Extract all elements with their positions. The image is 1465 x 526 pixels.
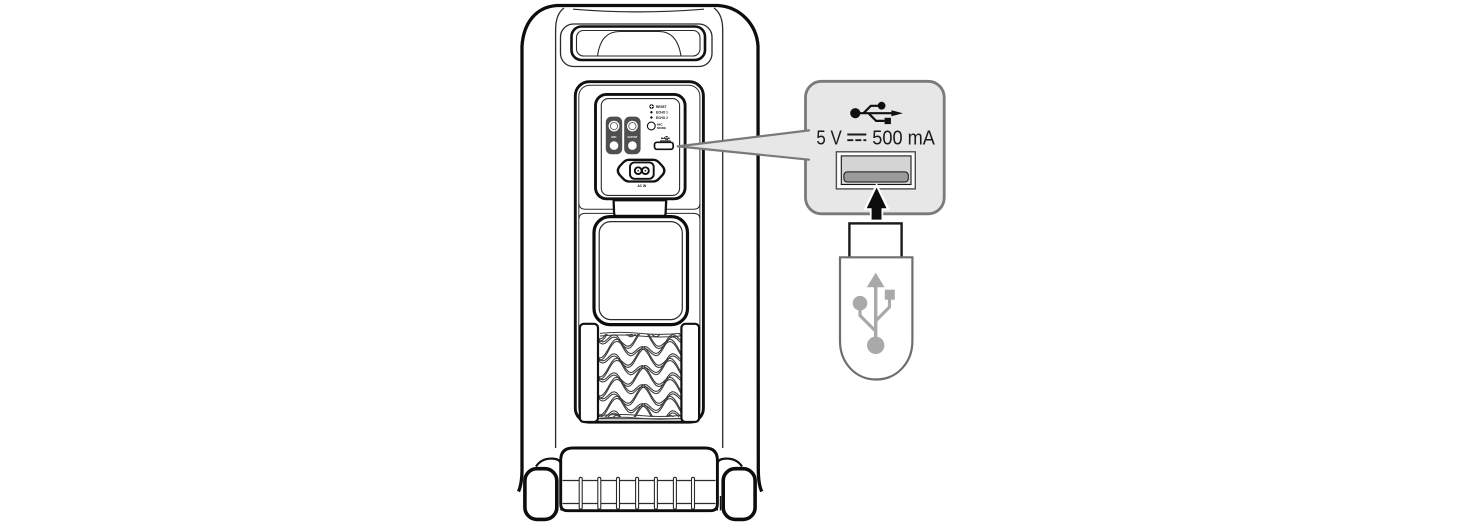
svg-text:RESET: RESET	[656, 105, 667, 109]
svg-text:ECHO 1: ECHO 1	[656, 111, 668, 115]
svg-text:MODE: MODE	[657, 126, 666, 130]
svg-text:AC IN: AC IN	[637, 184, 646, 188]
svg-text:GUITAR: GUITAR	[628, 135, 638, 139]
svg-text:MIC: MIC	[611, 135, 616, 139]
svg-text:ECHO 2: ECHO 2	[656, 116, 668, 120]
svg-text:500 mA: 500 mA	[872, 126, 935, 149]
svg-text:5 V: 5 V	[816, 126, 842, 149]
